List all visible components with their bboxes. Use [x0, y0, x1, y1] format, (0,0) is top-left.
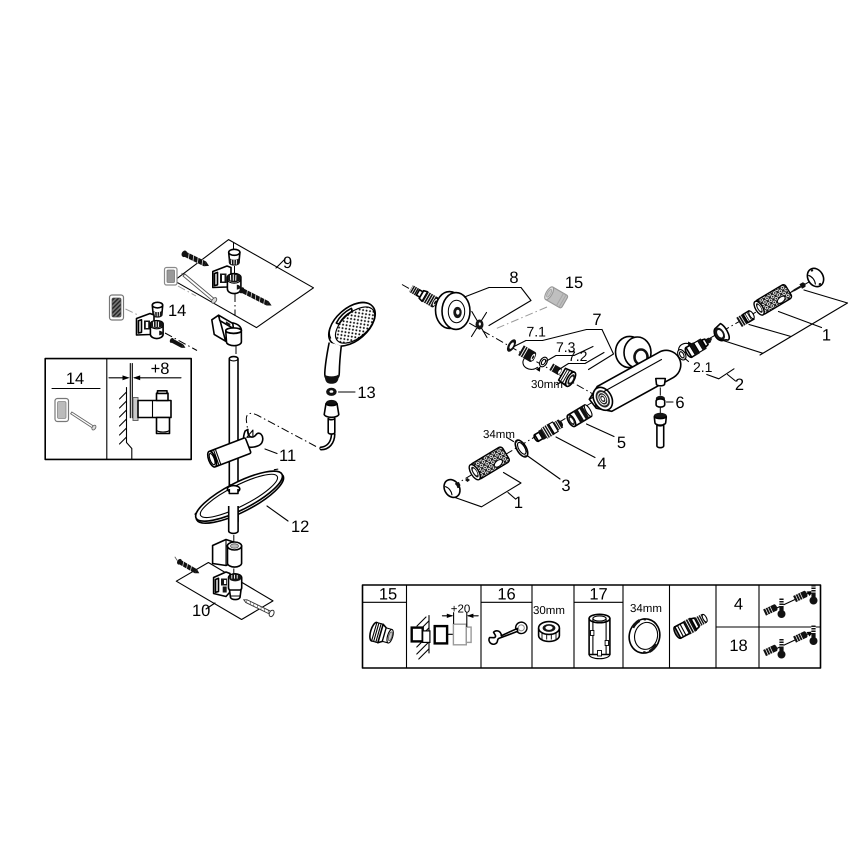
svg-text:13: 13 — [357, 384, 375, 402]
svg-text:1: 1 — [514, 494, 523, 512]
svg-text:30mm: 30mm — [533, 605, 565, 617]
svg-text:17: 17 — [589, 586, 607, 604]
svg-text:5: 5 — [617, 434, 626, 452]
svg-text:15: 15 — [565, 274, 583, 292]
svg-text:30mm: 30mm — [531, 379, 563, 391]
svg-text:12: 12 — [291, 518, 309, 536]
svg-text:2: 2 — [735, 376, 744, 394]
svg-text:+8: +8 — [151, 360, 170, 378]
svg-text:1: 1 — [822, 327, 831, 345]
svg-text:2.1: 2.1 — [693, 359, 713, 375]
svg-text:34mm: 34mm — [630, 603, 662, 615]
svg-text:8: 8 — [509, 269, 518, 287]
svg-text:11: 11 — [279, 447, 296, 465]
svg-text:15: 15 — [379, 586, 397, 604]
svg-text:4: 4 — [734, 596, 743, 614]
svg-text:7.2: 7.2 — [568, 348, 588, 364]
svg-text:16: 16 — [497, 586, 515, 604]
svg-text:9: 9 — [283, 254, 292, 272]
svg-text:7.1: 7.1 — [527, 324, 547, 340]
svg-text:10: 10 — [192, 602, 210, 620]
svg-text:14: 14 — [66, 370, 84, 388]
svg-text:4: 4 — [597, 455, 606, 473]
svg-text:7: 7 — [592, 311, 601, 329]
svg-text:18: 18 — [729, 637, 747, 655]
svg-text:14: 14 — [168, 302, 186, 320]
svg-text:3: 3 — [561, 477, 570, 495]
svg-text:6: 6 — [675, 394, 684, 412]
